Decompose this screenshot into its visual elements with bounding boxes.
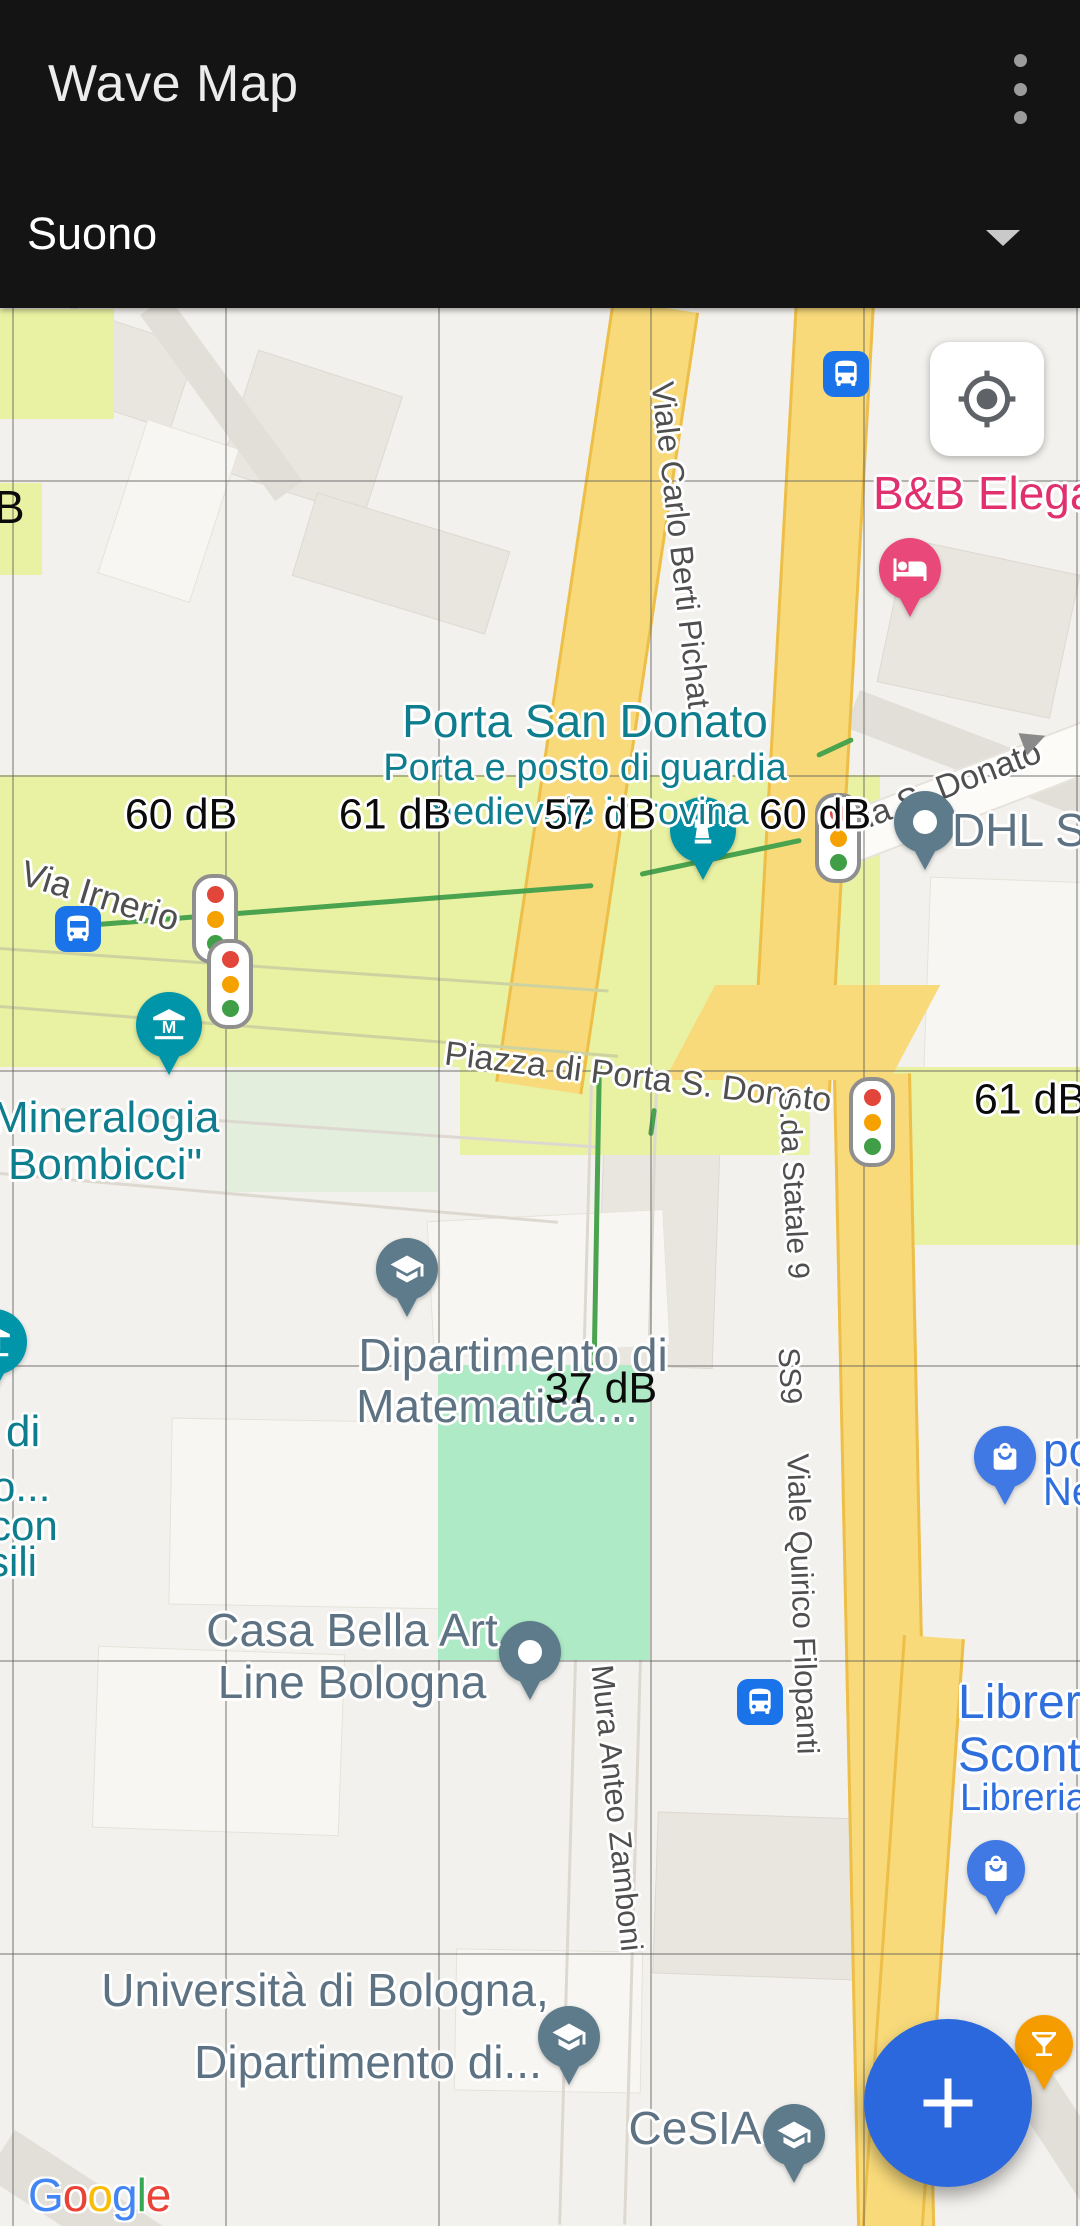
overflow-menu-button[interactable]	[1000, 50, 1040, 128]
db-measurement-clipped: B	[0, 484, 25, 530]
poi-label-shop-2: Ne	[1043, 1472, 1080, 1512]
poi-label-universita-2: Dipartimento di...	[194, 2039, 542, 2085]
db-measurement: 57 dB	[544, 794, 656, 837]
google-logo: Google	[28, 2168, 170, 2222]
poi-label-universita-1[interactable]: Università di Bologna,	[101, 1967, 548, 2013]
phone-screen: Viale Carlo Berti Pichat Via S. Donato V…	[0, 0, 1080, 2226]
svg-text:M: M	[162, 1017, 177, 1037]
grid-line	[650, 308, 652, 2226]
svg-text:M: M	[0, 1334, 1, 1354]
google-letter: G	[28, 2169, 63, 2221]
street-label-ss9: SS9	[773, 1347, 806, 1405]
bus-stop-icon[interactable]	[737, 1679, 783, 1725]
dhl-pin[interactable]	[894, 791, 956, 870]
grid-line	[863, 308, 865, 2226]
poi-label-shop-1[interactable]: po	[1043, 1427, 1080, 1473]
poi-label-libreria-3: Libreria	[960, 1779, 1080, 1817]
university-pin[interactable]	[538, 2006, 600, 2085]
app-bar: Wave Map Suono	[0, 0, 1080, 308]
building	[292, 492, 511, 634]
poi-label-casa-bella-2: Line Bologna	[218, 1659, 487, 1705]
university-pin[interactable]	[376, 1238, 438, 1317]
building	[652, 1811, 865, 1980]
db-measurement: 37 dB	[545, 1368, 657, 1411]
building	[97, 419, 239, 603]
google-letter: o	[63, 2169, 88, 2221]
casa-bella-pin[interactable]	[499, 1621, 561, 1700]
poi-label-libreria-2: Sconto	[958, 1732, 1080, 1780]
my-location-icon	[956, 368, 1018, 430]
bus-stop-icon[interactable]	[55, 906, 101, 952]
google-letter: l	[137, 2169, 146, 2221]
museum-pin[interactable]: M	[0, 1309, 27, 1392]
bus-stop-icon[interactable]	[823, 351, 869, 397]
poi-label-dhl[interactable]: DHL ST	[952, 807, 1080, 853]
overflow-dot	[1014, 54, 1027, 67]
poi-label-bnb[interactable]: B&B Elegan	[873, 470, 1080, 516]
overflow-dot	[1014, 111, 1027, 124]
poi-label-porta-san-donato[interactable]: Porta San Donato	[402, 698, 768, 744]
google-letter: e	[146, 2169, 171, 2221]
poi-fragment-4: sili	[0, 1541, 37, 1583]
db-measurement: 61 dB	[974, 1079, 1080, 1122]
db-measurement: 60 dB	[759, 794, 871, 837]
add-measurement-fab[interactable]	[864, 2019, 1032, 2187]
layer-selector-dropdown[interactable]: Suono	[0, 200, 1080, 275]
traffic-light-icon	[207, 939, 253, 1029]
google-letter: o	[87, 2169, 112, 2221]
shop-pin[interactable]	[974, 1426, 1036, 1505]
zone-lime	[0, 309, 114, 419]
db-measurement: 61 dB	[339, 794, 451, 837]
grid-line	[1076, 308, 1078, 2226]
cesia-pin[interactable]	[763, 2104, 825, 2183]
hotel-pin[interactable]	[879, 538, 941, 617]
poi-label-casa-bella-1[interactable]: Casa Bella Art	[206, 1607, 497, 1653]
building	[168, 1418, 453, 1610]
overflow-dot	[1014, 83, 1027, 96]
poi-label-libreria-1[interactable]: Libreria	[958, 1679, 1080, 1727]
grid-line	[12, 308, 14, 2226]
dropdown-arrow-icon	[986, 230, 1020, 246]
poi-sublabel-porta-1: Porta e posto di guardia	[383, 749, 787, 787]
poi-label-mineralogia-2: i Bombicci"	[0, 1143, 202, 1187]
poi-label-mineralogia-1[interactable]: Mineralogia	[0, 1096, 219, 1140]
grid-line	[0, 1953, 1080, 1955]
db-measurement: 60 dB	[125, 794, 237, 837]
plus-icon	[906, 2061, 990, 2145]
bookshop-pin[interactable]	[967, 1840, 1025, 1915]
grid-line	[225, 308, 227, 2226]
grid-line	[438, 308, 440, 2226]
app-title: Wave Map	[48, 54, 299, 114]
traffic-light-icon	[849, 1077, 895, 1167]
poi-fragment-1: di	[6, 1410, 40, 1454]
museum-pin[interactable]: M	[136, 992, 202, 1075]
my-location-button[interactable]	[930, 342, 1044, 456]
poi-label-cesia[interactable]: CeSIA	[629, 2105, 762, 2151]
zone-sage	[225, 1070, 438, 1192]
google-letter: g	[112, 2169, 137, 2221]
street-label-filopanti: Viale Quirico Filopanti	[782, 1453, 823, 1755]
layer-selector-value: Suono	[27, 208, 157, 260]
map-canvas[interactable]: Viale Carlo Berti Pichat Via S. Donato V…	[0, 0, 1080, 2226]
